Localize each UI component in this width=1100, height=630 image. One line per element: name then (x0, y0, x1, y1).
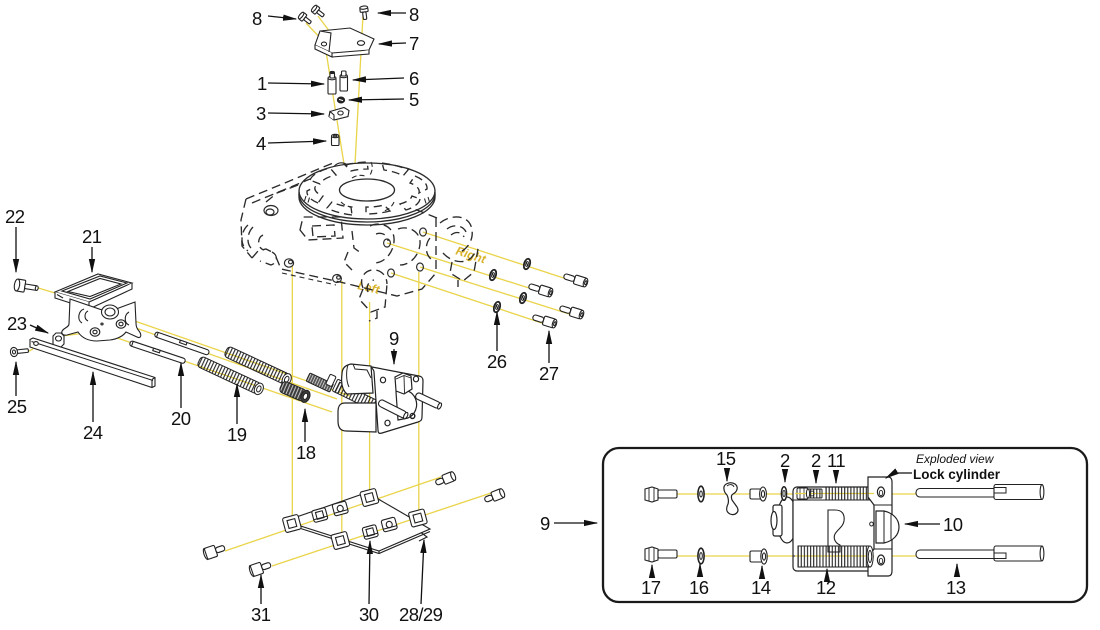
svg-text:5: 5 (409, 89, 419, 110)
svg-text:25: 25 (7, 396, 27, 417)
svg-text:2: 2 (811, 450, 821, 471)
svg-text:12: 12 (816, 577, 836, 598)
svg-text:26: 26 (487, 351, 507, 372)
svg-text:22: 22 (5, 206, 25, 227)
svg-text:24: 24 (83, 422, 103, 443)
svg-text:13: 13 (946, 577, 966, 598)
svg-text:1: 1 (257, 73, 267, 94)
svg-text:10: 10 (943, 514, 963, 535)
svg-text:20: 20 (171, 408, 191, 429)
svg-text:17: 17 (641, 577, 661, 598)
svg-text:Lock cylinder: Lock cylinder (913, 467, 1001, 482)
svg-text:18: 18 (296, 442, 316, 463)
svg-text:23: 23 (7, 313, 27, 334)
svg-text:28/29: 28/29 (399, 604, 443, 625)
svg-text:30: 30 (359, 604, 379, 625)
svg-text:3: 3 (256, 103, 266, 124)
svg-text:19: 19 (227, 424, 247, 445)
svg-text:7: 7 (409, 33, 419, 54)
svg-text:15: 15 (716, 448, 736, 469)
svg-text:Exploded view: Exploded view (916, 452, 995, 466)
svg-text:8: 8 (409, 4, 419, 25)
svg-text:16: 16 (689, 577, 709, 598)
svg-text:8: 8 (252, 8, 262, 29)
svg-text:14: 14 (751, 577, 771, 598)
svg-text:2: 2 (780, 450, 790, 471)
svg-text:31: 31 (251, 604, 271, 625)
svg-text:21: 21 (82, 226, 102, 247)
svg-text:27: 27 (539, 363, 559, 384)
svg-text:9: 9 (540, 513, 550, 534)
svg-text:6: 6 (409, 68, 419, 89)
svg-text:4: 4 (256, 133, 266, 154)
svg-text:9: 9 (389, 328, 399, 349)
svg-text:11: 11 (827, 450, 845, 471)
